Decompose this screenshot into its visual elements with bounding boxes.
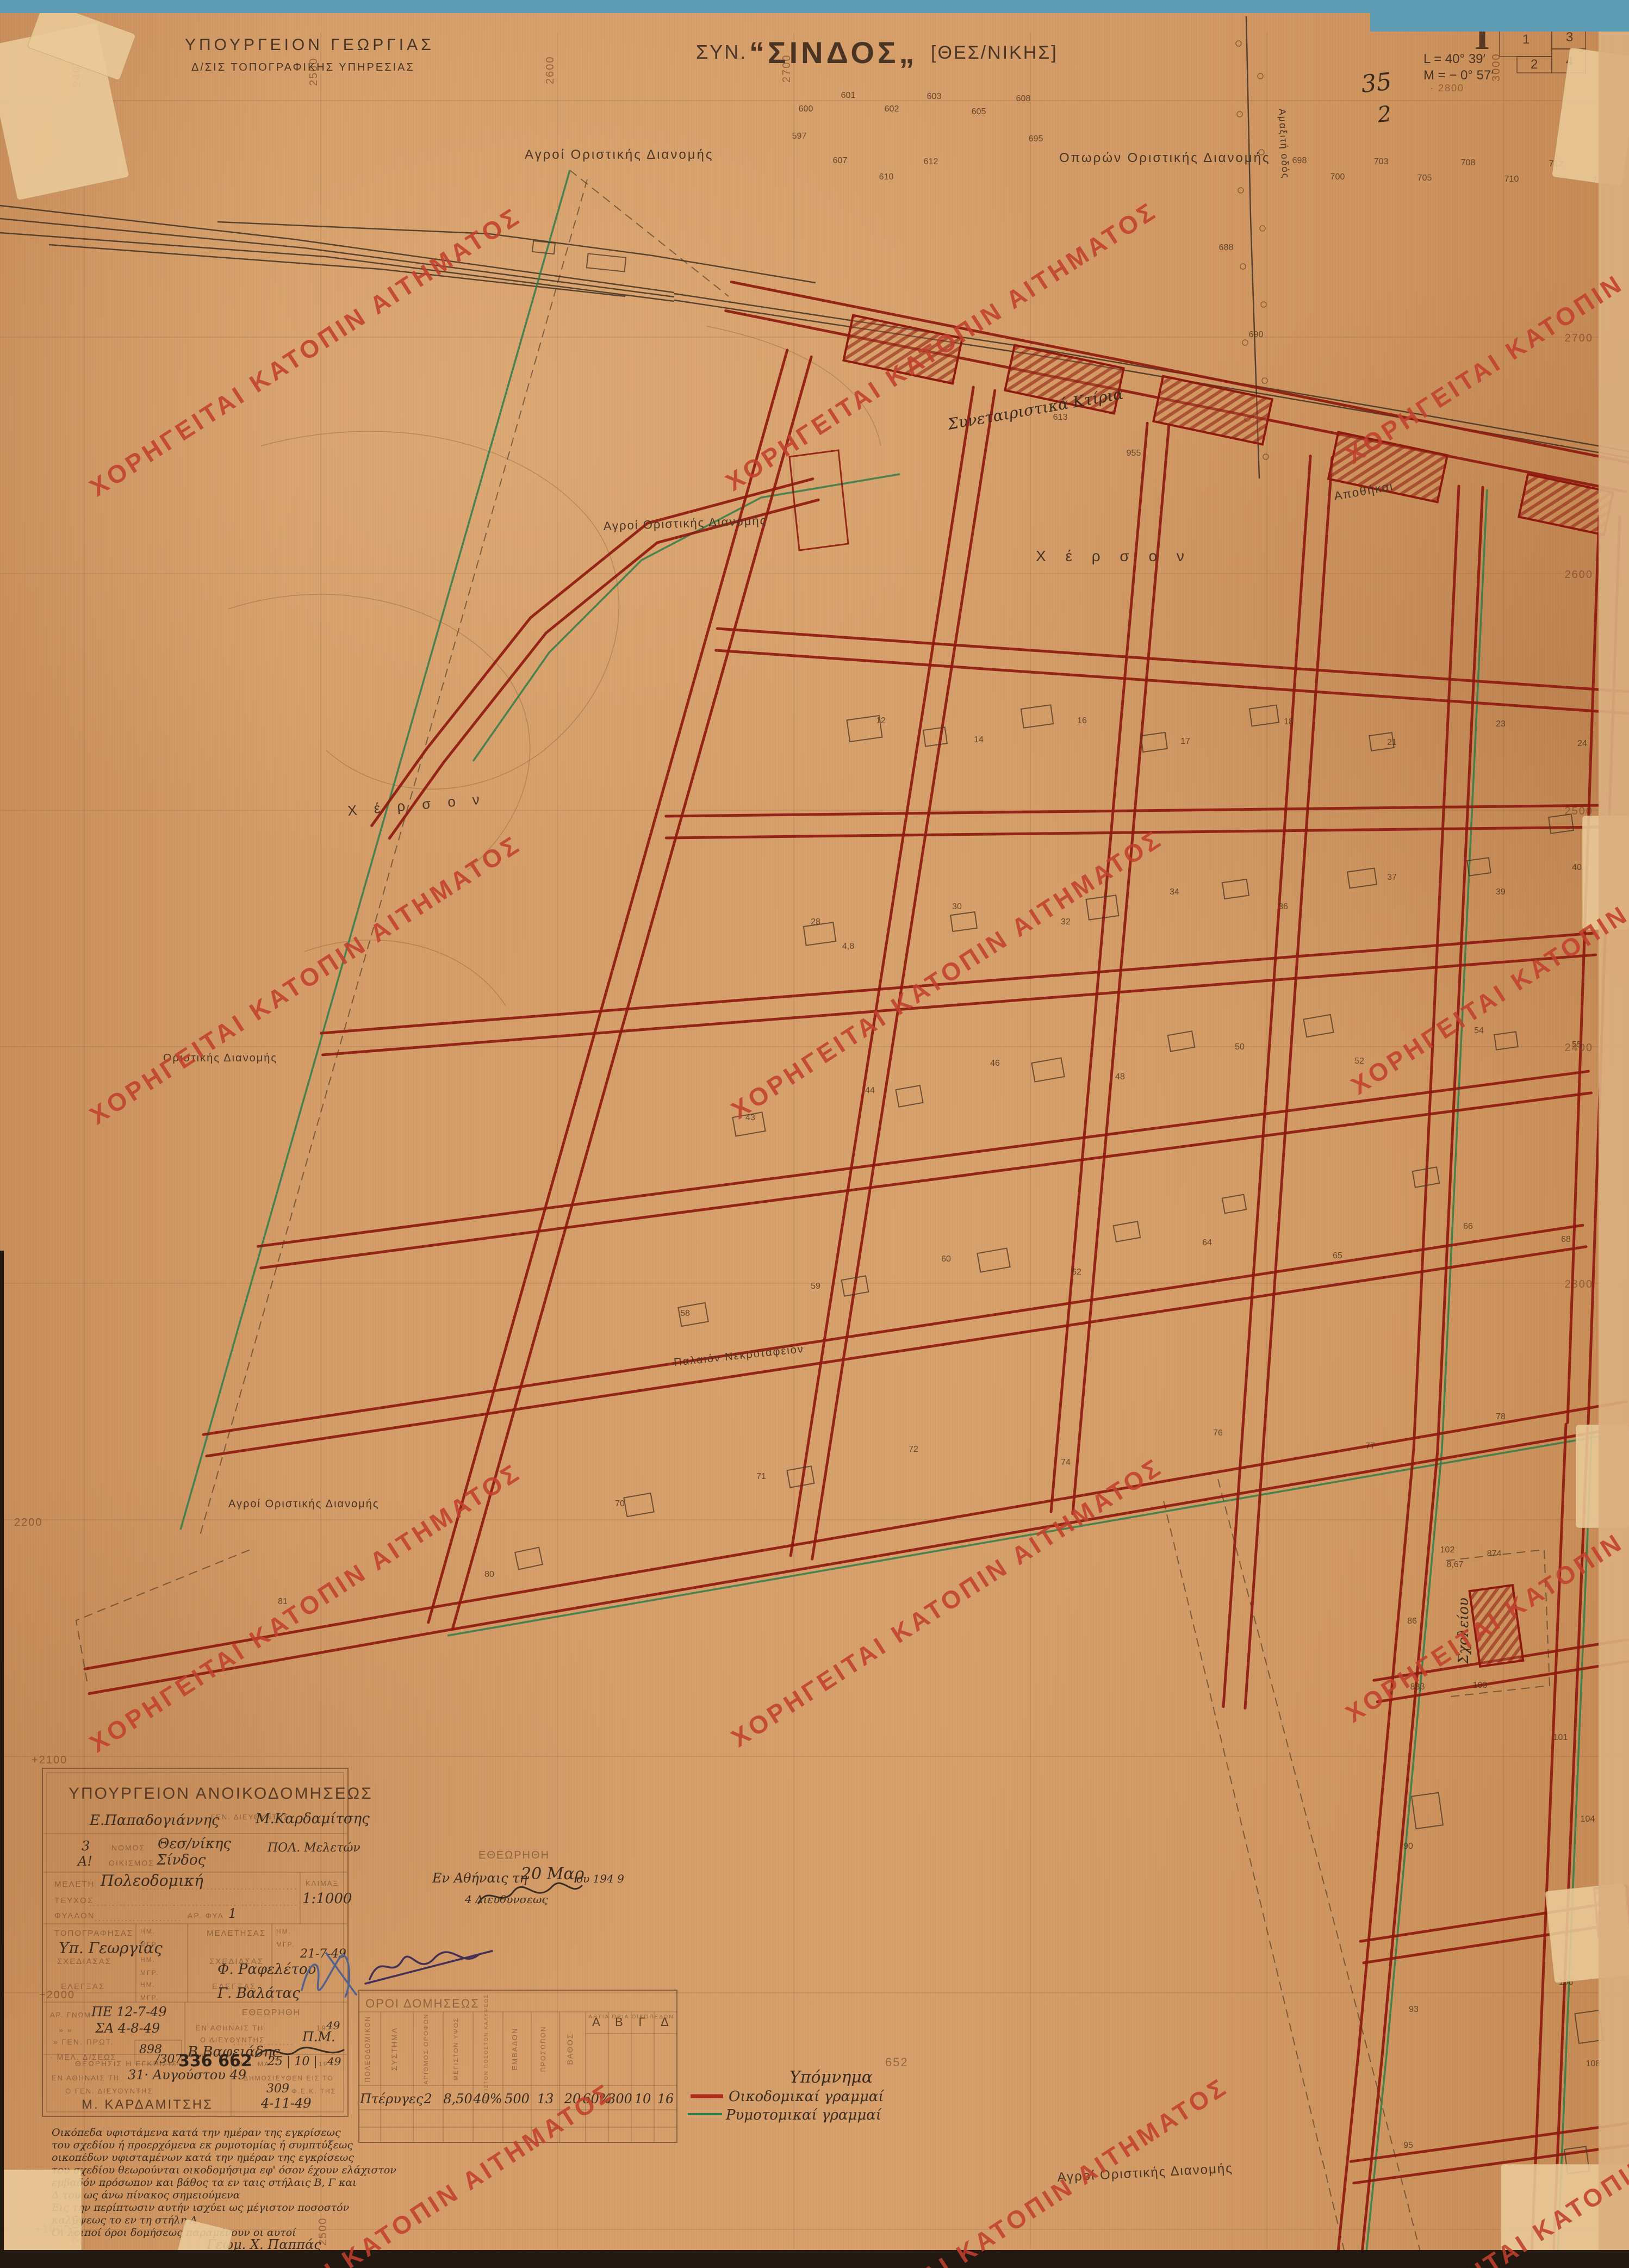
map-label: Οπωρών Οριστικής Διανομής xyxy=(1059,151,1271,165)
building-outline xyxy=(1222,879,1249,899)
parcel-number: 39 xyxy=(1496,887,1506,897)
form-text: ΗΜ. xyxy=(140,1981,156,1989)
street-edge-line xyxy=(207,1247,1586,1456)
table-cell: 40% xyxy=(472,2091,502,2107)
tree-icon xyxy=(1242,340,1248,345)
parcel-number: 59 xyxy=(811,1282,820,1291)
parcel-number: 65 xyxy=(1333,1251,1342,1260)
parcel-number: 695 xyxy=(1029,134,1043,144)
street-edge-line xyxy=(261,1093,1591,1268)
form-text: ΑΡ. ΦΥΛ xyxy=(188,1911,224,1920)
coordinate-m: M = − 0° 57′ xyxy=(1423,68,1494,83)
parcel-number: 101 xyxy=(1553,1733,1568,1742)
parcel-number: 34 xyxy=(1170,887,1179,897)
contour-line xyxy=(228,594,530,870)
annotation: 20 Μαρ xyxy=(520,1865,585,1884)
contour-line xyxy=(261,431,619,789)
parcel-number: 95 xyxy=(1403,2141,1413,2150)
watermark-text: ΧΟΡΗΓΕΙΤΑΙ ΚΑΤΟΠΙΝ ΑΙΤΗΜΑΤΟΣ xyxy=(726,1452,1167,1753)
map-and-form-text: 24002500260027003000· 280027002600250024… xyxy=(14,30,1593,2252)
grid-label: · 2800 xyxy=(1430,83,1464,94)
building-outline xyxy=(624,1493,654,1517)
tree-icon xyxy=(1260,226,1265,231)
parcel-number: 874 xyxy=(1487,1549,1502,1558)
parcel-number: 74 xyxy=(1061,1458,1071,1467)
tree-icon xyxy=(1236,41,1241,46)
building-line-streets xyxy=(85,282,1629,2268)
form-text: Ο ΓΕΝ. ΔΙΕΥΘΥΝΤΗΣ xyxy=(65,2087,153,2095)
form-text: Φ. Ραφελέτου xyxy=(217,1961,316,1978)
note-paragraph-line: Οικόπεδα υφιστάμενα κατά την ημέραν της … xyxy=(52,2127,341,2139)
parcel-number: 58 xyxy=(680,1309,690,1318)
form-text: ΟΙΚΙΣΜΟΣ xyxy=(109,1859,154,1867)
parcel-number: 64 xyxy=(1202,1238,1212,1247)
building-outline xyxy=(1141,732,1167,752)
form-text: ΜΓΡ. xyxy=(276,1941,295,1948)
note-paragraph-line: Οι λοιποί όροι δομήσεως παραμένουν οι αυ… xyxy=(52,2227,297,2239)
table-col-header: ΒΑΘΟΣ xyxy=(565,2033,574,2065)
parcel-number: 703 xyxy=(1374,157,1389,166)
parcel-number: 605 xyxy=(972,107,986,116)
table-col-header: ΜΕΓΙΣΤΟΝ ΠΟΣΟΣΤΟΝ ΚΑΛΥΨΕΩΣ xyxy=(483,1994,489,2104)
form-text: ΕΝ ΑΘΗΝΑΙΣ ΤΗ xyxy=(52,2074,120,2082)
signature-scribble xyxy=(365,1951,492,1984)
street-edge-line xyxy=(85,1401,1627,1669)
form-text: ΕΘΕΩΡΗΘΗ xyxy=(242,2008,301,2017)
parcel-number: 90 xyxy=(1403,1842,1413,1851)
form-text: 4-11-49 xyxy=(260,2096,312,2111)
parcel-number: 708 xyxy=(1461,158,1476,167)
contour-lines xyxy=(228,326,881,1006)
building-outline xyxy=(1304,1015,1334,1037)
form-text: ΗΜ. xyxy=(140,1928,156,1935)
stamp-number: 652 xyxy=(885,2055,909,2069)
dashed-boundary xyxy=(1164,1501,1348,2268)
parcel-number: 688 xyxy=(1219,243,1234,252)
parcel-number: 610 xyxy=(879,172,894,182)
table-col-header: Α xyxy=(592,2015,602,2029)
sheet-fraction: 35 xyxy=(1360,67,1393,98)
scanned-map-page: 6006016026036056086076106125976956139556… xyxy=(0,0,1629,2268)
form-text: 1 xyxy=(228,1906,237,1921)
table-title: ΟΡΟΙ ΔΟΜΗΣΕΩΣ xyxy=(365,1997,480,2010)
parcel-number: 48 xyxy=(1115,1072,1125,1082)
legend-heading: Υπόμνημα xyxy=(789,2068,873,2087)
ministry-line2: Δ/ΣΙΣ ΤΟΠΟΓΡΑΦΙΚΗΣ ΥΠΗΡΕΣΙΑΣ xyxy=(191,61,415,73)
form-text: ΑΡ. ΓΝΩΜ. xyxy=(50,2011,95,2019)
parcel-number: 37 xyxy=(1387,873,1397,882)
parcel-number: 601 xyxy=(841,91,856,100)
building-outline xyxy=(950,912,977,931)
annotation: 4 Διευθύνσεως xyxy=(464,1893,548,1906)
form-text: Β.Δ. ΜΑ xyxy=(238,2060,270,2068)
street-edge-line xyxy=(1051,423,1147,1512)
form-text: Ε.Παπαδογιάννης xyxy=(89,1812,220,1829)
tree-icon xyxy=(1240,264,1246,269)
index-cell-3: 3 xyxy=(1566,30,1575,45)
table-col-header: ΠΟΛΕΟΔΟΜΙΚΟΝ xyxy=(364,2016,371,2083)
parcel-number: 8,67 xyxy=(1446,1560,1463,1569)
parcel-number: 18 xyxy=(1284,717,1294,726)
table-cell: 500 xyxy=(505,2091,530,2107)
form-text: 19 xyxy=(319,2060,328,2068)
map-title-suffix: [ΘΕΣ/ΝΙΚΗΣ] xyxy=(931,42,1058,63)
parcel-number: 66 xyxy=(1463,1222,1473,1231)
form-text: ΕΛΕΓΞΑΣ xyxy=(61,1982,105,1991)
scan-edge-strip xyxy=(0,2250,1629,2268)
building-terms-table: ΟΡΟΙ ΔΟΜΗΣΕΩΣΠΟΛΕΟΔΟΜΙΚΟΝΣΥΣΤΗΜΑΑΡΙΘΜΟΣ … xyxy=(359,1994,674,2107)
parcel-number: 102 xyxy=(1440,1545,1455,1555)
form-text: ΔΗΜΟΣΙΕΥΘΕΝ ΕΙΣ ΤΟ xyxy=(244,2074,334,2082)
table-col-header: Γ xyxy=(638,2015,646,2029)
street-edge-line xyxy=(666,805,1599,816)
map-label: Χ έ ρ σ ο ν xyxy=(347,791,487,819)
grid-label: 2600 xyxy=(1565,569,1594,581)
form-text: Σίνδος xyxy=(156,1852,206,1868)
index-cell-2: 2 xyxy=(1531,57,1539,72)
watermark-text: ΧΟΡΗΓΕΙΤΑΙ ΚΑΤΟΠΙΝ ΑΙΤΗΜΑΤΟΣ xyxy=(726,824,1167,1124)
form-text: 309 xyxy=(266,2082,289,2096)
legend-label: Οικοδομικαί γραμμαί xyxy=(729,2089,885,2105)
form-text: ΠΟΛ. Μελετών xyxy=(267,1841,360,1855)
parcel-number: 16 xyxy=(1077,716,1087,725)
note-paragraph-line: οικοπέδων υφισταμένων κατά την ημέραν τη… xyxy=(52,2152,354,2164)
table-col-header: Β xyxy=(615,2015,625,2029)
table-col-header: ΑΡΙΘΜΟΣ ΟΡΟΦΩΝ xyxy=(423,2013,430,2084)
form-text: 31· Αυγούστου 49 xyxy=(128,2067,246,2083)
form-text: ΗΜ. xyxy=(140,1956,156,1963)
parcel-number: 23 xyxy=(1496,719,1506,729)
parcel-number: 607 xyxy=(833,156,848,165)
parcel-number: 77 xyxy=(1365,1441,1375,1451)
parcel-number: 78 xyxy=(1496,1412,1506,1421)
grid-label: 2700 xyxy=(1565,332,1594,344)
parcel-number: 36 xyxy=(1278,902,1288,911)
table-col-header: ΠΡΟΣΩΠΟΝ xyxy=(539,2025,547,2072)
parcel-number: 50 xyxy=(1235,1042,1245,1052)
parcel-number: 80 xyxy=(484,1570,494,1579)
form-text: Υπ. Γεωργίας xyxy=(59,1939,163,1957)
form-text: ΗΜ. xyxy=(276,1928,291,1935)
tree-icon xyxy=(1237,111,1242,117)
parcel-number: 602 xyxy=(885,104,899,114)
parcel-number: 690 xyxy=(1249,330,1264,339)
form-text: ΤΕΥΧΟΣ xyxy=(54,1896,94,1905)
parcel-number: 608 xyxy=(1016,94,1031,103)
street-edge-line xyxy=(428,350,787,1623)
scan-edge-strip xyxy=(0,1251,4,2268)
annotation: ΕΘΕΩΡΗΘΗ xyxy=(478,1849,550,1861)
grid-label: 3000 xyxy=(1490,53,1502,82)
form-text: Μ.Καρδαμίτσης xyxy=(255,1811,370,1827)
map-label: Παλαιόν Νεκροταφείον xyxy=(673,1343,805,1369)
dashed-boundary xyxy=(1218,1479,1425,2268)
form-header: ΥΠΟΥΡΓΕΙΟΝ ΑΝΟΙΚΟΔΟΜΗΣΕΩΣ xyxy=(69,1785,373,1803)
parcel-number: 54 xyxy=(1474,1026,1484,1035)
form-text: ΘΕΩΡΗΣΙΣ Η ΕΓΚΡΙΣΙΣ xyxy=(75,2059,177,2068)
watermark-text: ΧΟΡΗΓΕΙΤΑΙ ΚΑΤΟΠΙΝ ΑΙΤΗΜΑΤΟΣ xyxy=(720,196,1162,496)
dashed-boundary xyxy=(570,170,729,296)
table-col-header: ΕΜΒΑΔΟΝ xyxy=(511,2028,519,2071)
street-edge-line xyxy=(203,1225,1583,1434)
table-col-header: ΣΥΣΤΗΜΑ xyxy=(390,2027,399,2071)
parcel-number: 68 xyxy=(1561,1235,1571,1244)
building-outline xyxy=(515,1548,543,1570)
form-text: Α! xyxy=(77,1854,92,1869)
street-edge-line xyxy=(1245,457,1332,1708)
parcel-number: 597 xyxy=(792,132,807,141)
parcel-number: 32 xyxy=(1061,917,1071,927)
table-cell: 13 xyxy=(537,2091,554,2107)
map-label: Αμαξιτή οδός xyxy=(1277,108,1291,179)
form-text: ΣΧΕΔΙΑΣΑΣ xyxy=(57,1957,111,1966)
building-outline xyxy=(1249,705,1279,726)
parcel-number: 40 xyxy=(1572,863,1582,872)
form-text: ΕΝ ΑΘΗΝΑΙΣ ΤΗ xyxy=(196,2024,264,2032)
parcel-number: 76 xyxy=(1213,1428,1223,1438)
table-cell: 8,50 xyxy=(443,2091,472,2107)
building-outline xyxy=(1347,868,1377,888)
grid-label: 2700 xyxy=(781,54,793,83)
form-text: » ΓΕΝ. ΠΡΩΤ. xyxy=(53,2037,114,2046)
form-text: Θεσ/νίκης xyxy=(158,1836,231,1852)
building-outline xyxy=(1494,1032,1518,1049)
form-text: ΜΕΛΕΤΗ xyxy=(54,1880,95,1889)
parcel-number: 60 xyxy=(941,1254,951,1264)
parcel-number: 710 xyxy=(1504,175,1519,184)
parcel-number: 62 xyxy=(1072,1267,1081,1277)
table-cell: 10 xyxy=(635,2091,651,2107)
street-edge-line xyxy=(258,1071,1588,1246)
form-text: 1:1000 xyxy=(302,1891,352,1907)
note-paragraph-line: του σχεδίου ή προερχόμενα εκ ρυμοτομίας … xyxy=(52,2139,353,2151)
grid-label: +2100 xyxy=(32,1754,67,1766)
buildings xyxy=(515,241,1629,2174)
building-outline xyxy=(1021,705,1053,728)
note-paragraph-line: Εις την περίπτωσιν αυτήν ισχύει ως μέγισ… xyxy=(51,2202,350,2214)
parcel-number: 93 xyxy=(1409,2005,1419,2014)
form-text: Π.Μ. xyxy=(302,2029,335,2045)
tape-patches xyxy=(0,1,1629,2268)
parcel-number: 24 xyxy=(1577,739,1587,748)
scan-edge-strip xyxy=(1370,0,1629,32)
legend: ΥπόμνημαΟικοδομικαί γραμμαίΡυμοτομικαί γ… xyxy=(688,2068,885,2123)
parcel-number: 603 xyxy=(927,92,942,101)
note-paragraph-line: εμβαδόν πρόσωπον και βάθος τα εν ταις στ… xyxy=(52,2177,357,2189)
form-text: 25 | 10 | xyxy=(267,2055,318,2068)
coordinate-grid xyxy=(0,33,1629,2248)
parcel-number: 30 xyxy=(952,902,962,911)
street-edge-line xyxy=(1351,2123,1627,2161)
boundary-dashed-lines xyxy=(76,170,1550,2268)
street-edge-line xyxy=(452,357,811,1629)
map-title: “ΣΙΝΔΟΣ„ xyxy=(749,35,918,70)
building-outline xyxy=(977,1248,1010,1272)
parcel-number: 103 xyxy=(1473,1681,1488,1690)
street-edge-line xyxy=(1360,487,1483,2268)
form-text: ΜΓΡ. xyxy=(140,1969,159,1977)
tree-icon xyxy=(1238,188,1243,193)
parcel-number: 52 xyxy=(1354,1057,1364,1066)
map-label: Αγροί Οριστικής Διανομής xyxy=(603,514,767,533)
grid-label: 2600 xyxy=(544,56,556,85)
table-cell: Πτέρυγες xyxy=(359,2091,424,2107)
form-text: » » xyxy=(59,2025,72,2034)
map-label: Αγροί Οριστικής Διανομής xyxy=(228,1498,380,1510)
parcel-number: 72 xyxy=(909,1445,918,1454)
form-text: Γ. Βαλάτας xyxy=(217,1985,300,2002)
parcel-number: 28 xyxy=(811,917,820,927)
parcel-number: 108 xyxy=(1586,2059,1601,2068)
building-outline xyxy=(1114,1221,1141,1241)
form-text: ΠΕ 12-7-49 xyxy=(91,2004,167,2020)
scan-edges xyxy=(0,0,1629,2268)
parcel-number: 698 xyxy=(1292,156,1307,165)
table-cell: 16 xyxy=(657,2091,674,2107)
parcel-number: 17 xyxy=(1180,737,1190,746)
parcel-number: 104 xyxy=(1581,1815,1595,1824)
parcel-number: 600 xyxy=(799,104,813,114)
parcel-number: 612 xyxy=(924,157,938,166)
form-text: Μ. ΚΑΡΔΑΜΙΤΣΗΣ xyxy=(82,2097,213,2112)
watermark-text: ΧΟΡΗΓΕΙΤΑΙ ΚΑΤΟΠΙΝ ΑΙΤΗΜΑΤΟΣ xyxy=(1340,169,1629,469)
parcel-number: 955 xyxy=(1127,449,1141,458)
tree-icon xyxy=(1263,454,1269,459)
map-canvas: 6006016026036056086076106125976956139556… xyxy=(0,0,1629,2268)
parcel-number: 71 xyxy=(756,1472,766,1481)
building-outline xyxy=(532,241,555,254)
parcel-number: 21 xyxy=(1387,738,1397,747)
building-outline xyxy=(923,727,947,746)
form-text: ΣΑ 4-8-49 xyxy=(95,2021,160,2036)
table-col-header: Δ xyxy=(661,2015,670,2029)
building-outline xyxy=(587,253,626,271)
form-text: Ο ΔΙΕΥΘΥΝΤΗΣ xyxy=(200,2036,265,2044)
parcel-number: 46 xyxy=(990,1059,1000,1068)
parcel-number: 4,8 xyxy=(842,942,854,951)
street-edge-line xyxy=(1073,425,1169,1514)
table-col-header: ΜΕΓΙΣΤΟΝ ΥΨΟΣ xyxy=(453,2017,459,2080)
watermark-text: ΧΟΡΗΓΕΙΤΑΙ ΚΑΤΟΠΙΝ ΑΙΤΗΜΑΤΟΣ xyxy=(84,201,526,502)
grid-label: 2200 xyxy=(14,1517,43,1528)
form-text: ΜΓΡ. xyxy=(140,1994,159,2002)
header-static-text: ΥΠΟΥΡΓΕΙΟΝ ΓΕΩΡΓΙΑΣ Δ/ΣΙΣ ΤΟΠΟΓΡΑΦΙΚΗΣ Υ… xyxy=(185,14,1494,83)
ministry-line1: ΥΠΟΥΡΓΕΙΟΝ ΓΕΩΡΓΙΑΣ xyxy=(185,36,434,54)
form-text: ΜΕΛΕΤΗΣΑΣ xyxy=(207,1929,266,1938)
annotation: Εν Αθήναις τη xyxy=(432,1871,527,1886)
building-outline xyxy=(1467,858,1491,875)
form-text: ΦΥΛΛΟΝ xyxy=(54,1911,95,1921)
parcel-number: 700 xyxy=(1330,172,1345,182)
note-paragraph-line: του σχεδίου θεωρούνται οικοδομήσιμα εφ' … xyxy=(52,2164,396,2176)
scan-edge-strip xyxy=(1599,32,1629,2250)
form-text: ΝΟΜΟΣ xyxy=(111,1843,145,1852)
parcel-number: 705 xyxy=(1417,173,1432,183)
building-outline xyxy=(896,1085,923,1107)
form-text: ΚΛΙΜΑΞ xyxy=(306,1879,339,1887)
watermark-text: ΧΟΡΗΓΕΙΤΑΙ ΚΑΤΟΠΙΝ ΑΙΤΗΜΑΤΟΣ xyxy=(84,829,526,1130)
legend-label: Ρυμοτομικαί γραμμαί xyxy=(725,2107,882,2123)
annotation: ου 194 9 xyxy=(576,1872,624,1885)
map-title-prefix: ΣΥΝ. xyxy=(696,41,747,63)
parcel-number: 14 xyxy=(974,735,984,744)
map-label: Χ έ ρ σ ο ν xyxy=(1036,548,1192,564)
building-outline xyxy=(1168,1031,1195,1051)
form-text: 49 xyxy=(327,2055,341,2068)
coordinate-l: L = 40° 39′ xyxy=(1423,52,1485,66)
tree-icon xyxy=(1261,302,1266,307)
form-text: 3 xyxy=(82,1838,90,1854)
grid-label: 2500 xyxy=(308,58,320,86)
index-cell-1: 1 xyxy=(1522,32,1531,47)
building-outline xyxy=(1031,1058,1064,1082)
tree-icon xyxy=(1258,73,1263,79)
parcel-number: 86 xyxy=(1407,1617,1417,1626)
parcel-number: 12 xyxy=(876,716,886,725)
grid-label: 2300 xyxy=(1565,1278,1594,1290)
form-text: ΤΟΠΟΓΡΑΦΗΣΑΣ xyxy=(54,1929,133,1938)
form-text: Πολεοδομική xyxy=(100,1872,203,1890)
form-text: Φ.Ε.Κ. ΤΗΣ xyxy=(291,2087,336,2095)
alignment-line xyxy=(1365,489,1487,2268)
parcel-number: 44 xyxy=(865,1086,875,1095)
building-outline xyxy=(1412,1793,1443,1829)
sheet-fraction: 2 xyxy=(1376,102,1392,128)
map-label: Αγροί Οριστικής Διανομής xyxy=(525,147,713,162)
building-outline xyxy=(1222,1195,1246,1214)
grid-label: 2400 xyxy=(1565,1042,1594,1054)
table-cell: 2 xyxy=(423,2091,432,2107)
parcel-number: 70 xyxy=(615,1499,625,1508)
